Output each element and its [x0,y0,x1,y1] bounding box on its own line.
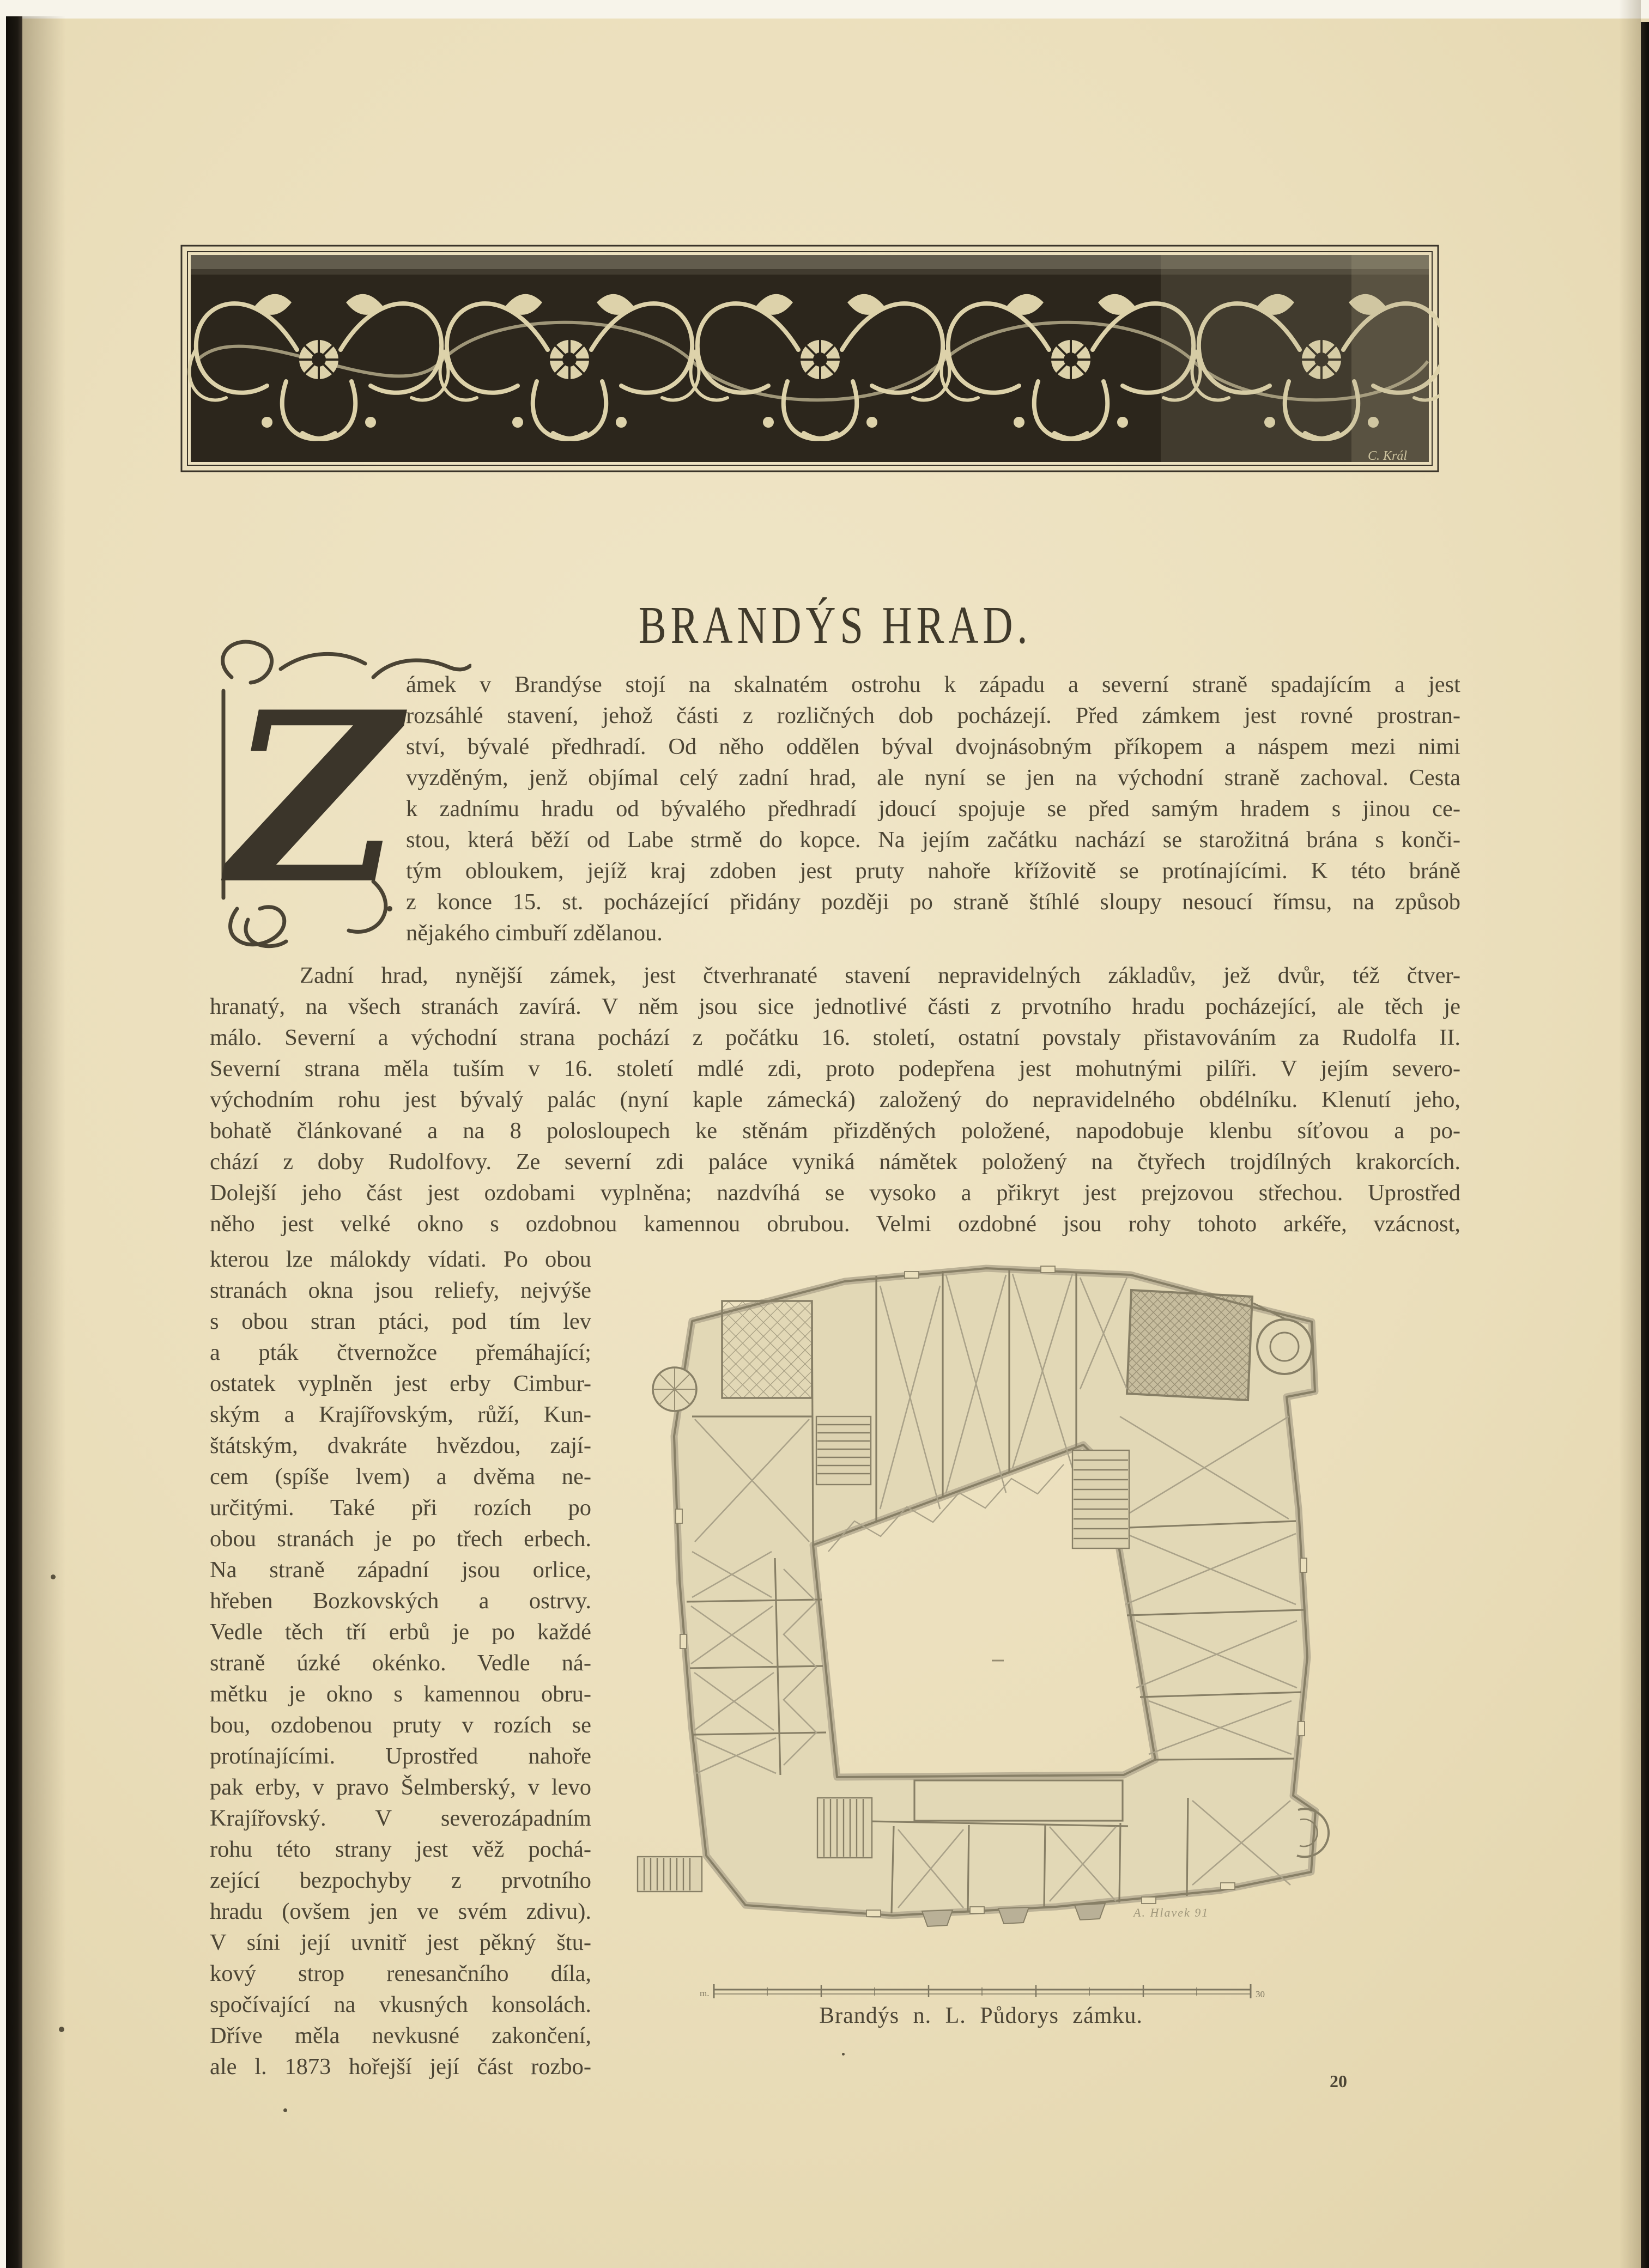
text-line: ámek v Brandýse stojí na skalnatém ostro… [406,669,1460,700]
text-line: hranatý, na všech stranách zavírá. V něm… [210,991,1460,1022]
text-line: Krajířovský. V severozápadním [210,1803,591,1834]
text-line: něho jest velké okno s ozdobnou kamennou… [210,1208,1460,1239]
text-line: bou, ozdobenou pruty v rozích se [210,1710,591,1741]
ink-speck [283,2108,287,2112]
text-line: hradu (ovšem jen ve svém zdivu). [210,1896,591,1927]
text-line: hřeben Bozkovských a ostrvy. [210,1585,591,1616]
floral-engraving: C. Král [180,244,1440,473]
ornamental-header-band: C. Král [180,244,1440,473]
text-line: Dolejší jeho část jest ozdobami vyplněna… [210,1177,1460,1208]
text-line: k zadnímu hradu od bývalého předhradí jd… [406,793,1460,824]
text-line: cem (spíše lvem) a dvěma ne- [210,1461,591,1492]
text-line: vyzděným, jenž objímal celý zadní hrad, … [406,762,1460,793]
text-line: kový strop renesančního díla, [210,1958,591,1989]
text-line: kterou lze málokdy vídati. Po obou [210,1244,591,1275]
text-line: straně úzké okénko. Vedle ná- [210,1647,591,1679]
opening-paragraph: ámek v Brandýse stojí na skalnatém ostro… [406,669,1460,948]
ink-speck [51,1574,56,1579]
text-line: Severní strana měla tuším v 16. století … [210,1053,1460,1084]
text-line: stou, která běží od Labe strmě do kopce.… [406,824,1460,855]
page-number: 20 [1330,2071,1347,2091]
text-line: bohatě článkované a na 8 polosloupech ke… [210,1115,1460,1146]
left-text-column: kterou lze málokdy vídati. Po oboustraná… [210,1244,591,2082]
floor-plan-drawing [610,1253,1335,1956]
ink-speck [59,2027,64,2032]
gutter-shadow [22,16,66,2268]
text-line: rozsáhlé stavení, jehož části z rozličný… [406,700,1460,731]
text-line: ským a Krajířovským, růží, Kun- [210,1399,591,1430]
text-line: Zadní hrad, nynější zámek, jest čtverhra… [210,960,1460,991]
scan-margin-left [0,0,6,2268]
text-line: protínajícími. Uprostřed nahoře [210,1741,591,1772]
text-line: štátským, dvakráte hvězdou, zají- [210,1430,591,1461]
ink-speck [842,2053,845,2056]
text-line: obou stranách je po třech erbech. [210,1523,591,1554]
text-line: mětku je okno s kamennou obru- [210,1679,591,1710]
text-line: málo. Severní a východní strana pochází … [210,1022,1460,1053]
text-line: V síni její uvnitř jest pěkný štu- [210,1927,591,1958]
page-title-text: BRANDÝS HRAD. [639,595,1032,656]
ornament-signature: C. Král [1368,449,1407,463]
book-page-scan: C. Král BRANDÝS HRAD. Z ámek v Brandýse … [0,0,1649,2268]
text-line: nějakého cimbuří zdělanou. [406,917,1460,948]
text-line: s obou stran ptáci, pod tím lev [210,1306,591,1337]
page-right-shade [1619,0,1641,2268]
scan-edge-right [1641,22,1649,2268]
castle-floor-plan [610,1253,1335,1956]
text-line: stranách okna jsou reliefy, nejvýše [210,1275,591,1306]
text-line: spočívající na vkusných konsolách. [210,1989,591,2020]
drop-cap-letter: Z [218,661,408,936]
text-line: ostatek vyplněn jest erby Cimbur- [210,1368,591,1399]
text-line: rohu této strany jest věž pochá- [210,1834,591,1865]
text-line: Na straně západní jsou orlice, [210,1554,591,1585]
scale-right-label: 30 [1256,1989,1265,1999]
text-line: pak erby, v pravo Šelmberský, v levo [210,1772,591,1803]
text-line: východním rohu jest bývalý palác (nyní k… [210,1084,1460,1115]
text-line: chází z doby Rudolfovy. Ze severní zdi p… [210,1146,1460,1177]
book-gutter-edge [6,16,22,2268]
text-line: určitými. Také při rozích po [210,1492,591,1523]
scan-margin-top [0,0,1649,19]
scale-bar: m. 30 [698,1981,1275,2003]
text-line: a pták čtvernožce přemáhající; [210,1337,591,1368]
text-line: Vedle těch tří erbů je po každé [210,1616,591,1647]
figure-caption: Brandýs n. L. Půdorys zámku. [643,2003,1319,2029]
plan-signature: A. Hlavek 91 [1133,1906,1297,1920]
text-line: zející bezpochyby z prvotního [210,1865,591,1896]
scale-left-label: m. [700,1988,709,1998]
second-paragraph: Zadní hrad, nynější zámek, jest čtverhra… [210,960,1460,1239]
text-line: Dříve měla nevkusné zakončení, [210,2020,591,2051]
text-line: tým obloukem, jejíž kraj zdoben jest pru… [406,855,1460,886]
text-line: z konce 15. st. pocházející přidány pozd… [406,886,1460,917]
text-line: ale l. 1873 hořejší její část rozbo- [210,2051,591,2082]
text-line: ství, bývalé předhradí. Od něho oddělen … [406,731,1460,762]
